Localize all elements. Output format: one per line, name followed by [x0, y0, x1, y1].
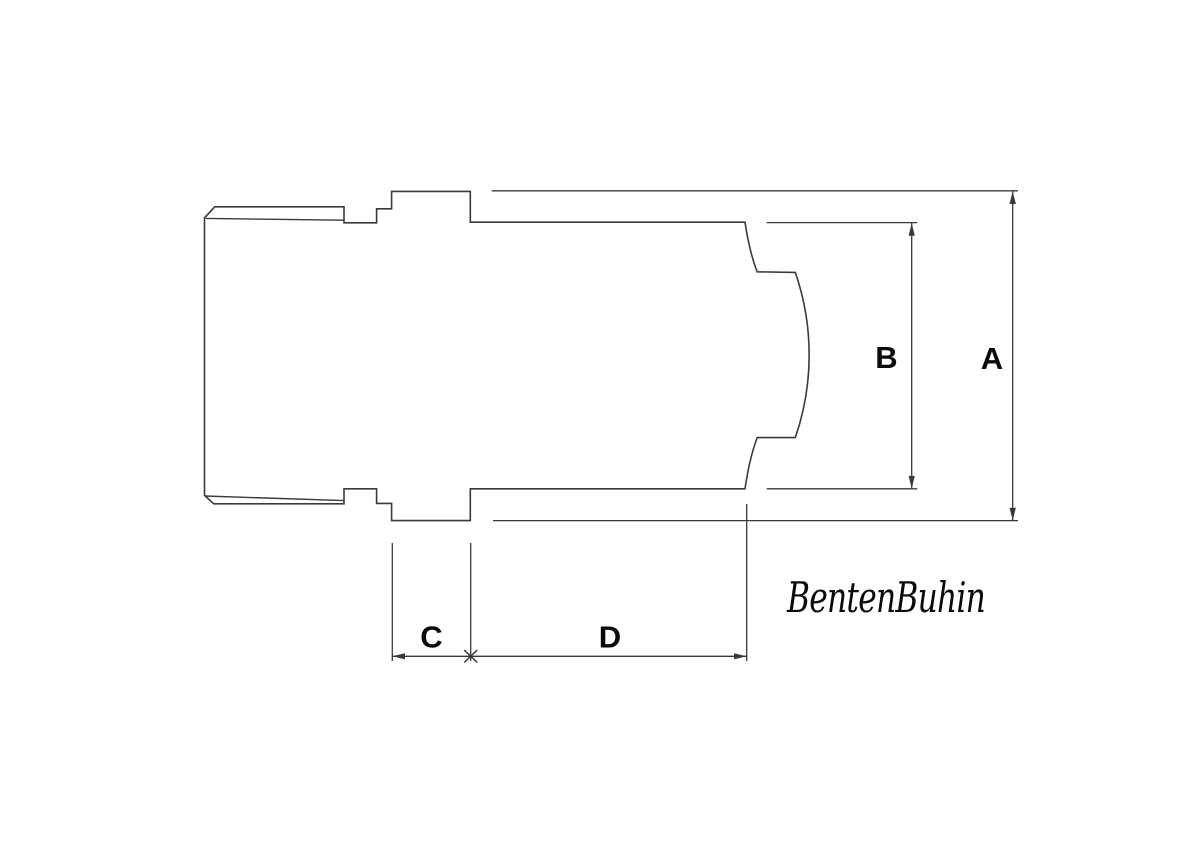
dim-c-arrow-left-icon: [392, 653, 405, 659]
brand-signature: BentenBuhin: [786, 573, 985, 622]
dim-c-d-lines: [392, 504, 746, 661]
technical-drawing-canvas: A B C D BentenBuhin: [0, 0, 1200, 848]
dim-a-lines: [492, 191, 1018, 521]
dimension-label-b: B: [875, 340, 897, 375]
dim-a-arrow-up-icon: [1010, 191, 1016, 204]
dim-b-arrow-down-icon: [909, 476, 915, 489]
dimension-label-a: A: [981, 341, 1003, 376]
dim-d-arrow-right-icon: [734, 653, 747, 659]
part-outline-group: [205, 191, 810, 520]
chamfer-edge-lines: [205, 218, 344, 500]
dimension-label-c: C: [420, 620, 442, 655]
dimension-label-d: D: [599, 620, 621, 655]
dim-b-arrow-up-icon: [909, 223, 915, 236]
drawing-page: A B C D BentenBuhin: [0, 0, 1200, 848]
part-outline: [205, 191, 810, 520]
dim-a-arrow-down-icon: [1010, 508, 1016, 521]
